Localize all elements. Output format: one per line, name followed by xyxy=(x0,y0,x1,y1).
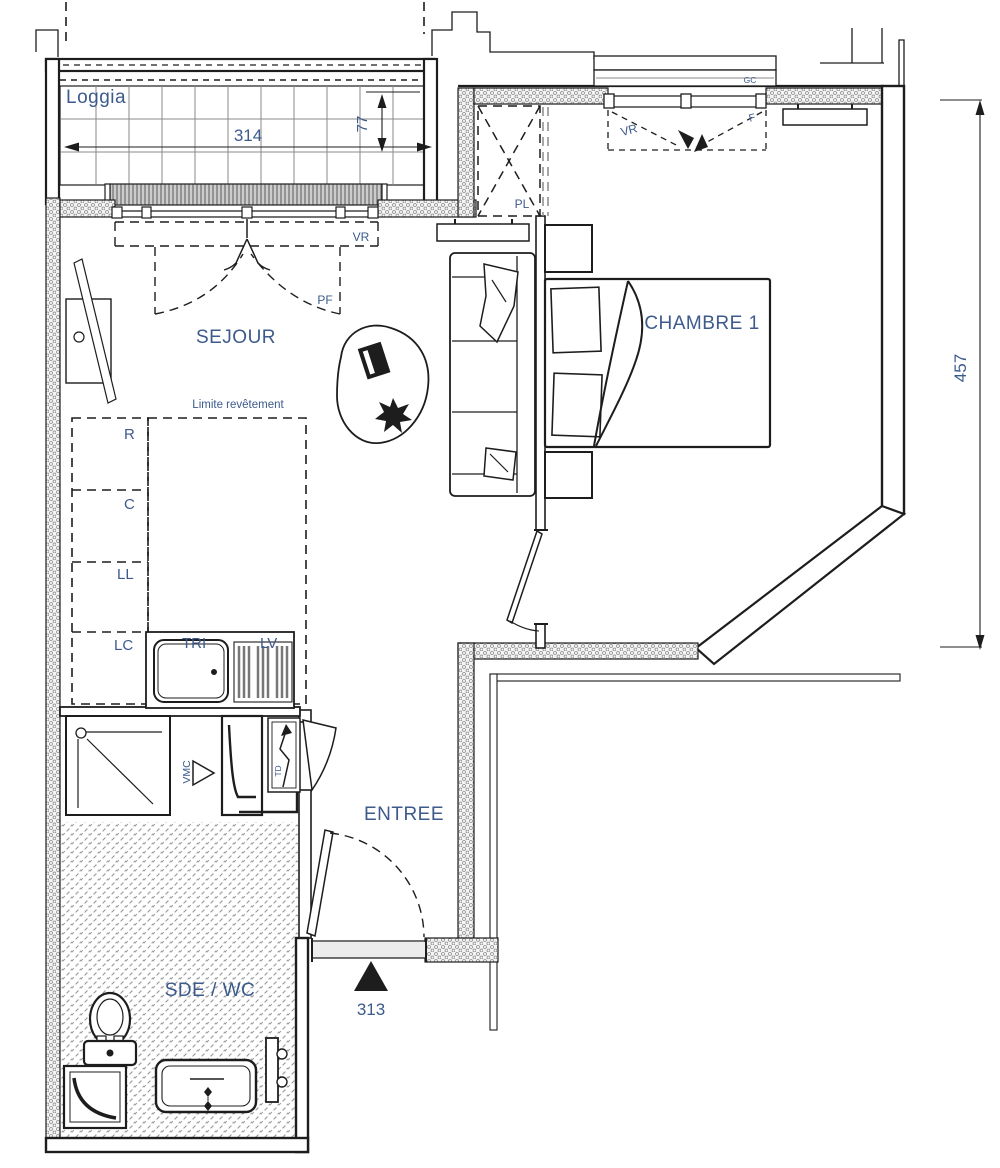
bathroom-door-swing xyxy=(303,720,336,790)
floor-plan-page: Loggia 314 77 457 SEJOUR CHAMBRE 1 ENTRE… xyxy=(0,0,1000,1168)
kitchen-block xyxy=(72,418,306,708)
annotation-f: F xyxy=(748,111,757,124)
annotation-pf: PF xyxy=(317,293,332,307)
living-window xyxy=(112,207,378,314)
kitchen-label-tri: TRI xyxy=(182,635,206,652)
wall-board xyxy=(66,259,116,403)
loggia-shutter-band xyxy=(110,184,382,205)
dim-right-height: 457 xyxy=(951,354,970,382)
kitchen-label-lc: LC xyxy=(114,637,133,654)
bedroom-door xyxy=(507,531,542,631)
annotation-vmc: VMC xyxy=(181,760,193,784)
annotation-gc: GC xyxy=(744,75,757,85)
room-label-loggia: Loggia xyxy=(66,87,126,108)
bed xyxy=(545,225,770,498)
shower xyxy=(66,716,170,815)
chamfer-wall xyxy=(696,506,904,664)
annotation-td: TD xyxy=(273,765,283,776)
room-label-sejour: SEJOUR xyxy=(196,327,276,348)
bedroom-radiator xyxy=(783,109,867,125)
dim-loggia-width: 314 xyxy=(234,126,262,145)
dim-loggia-depth: 77 xyxy=(354,116,371,133)
living-radiator xyxy=(437,219,529,241)
room-label-chambre-1: CHAMBRE 1 xyxy=(644,313,759,334)
electrical-panel xyxy=(268,718,300,792)
closet-pl xyxy=(478,106,548,216)
annotation-pl: PL xyxy=(515,197,530,211)
vmc-symbol xyxy=(193,761,214,785)
floor-plan: Loggia 314 77 457 SEJOUR CHAMBRE 1 ENTRE… xyxy=(0,0,1000,1168)
nightstand-bottom xyxy=(545,452,592,498)
vanity xyxy=(156,1060,256,1112)
entrance-door xyxy=(307,830,426,991)
sofa xyxy=(450,253,535,496)
kitchen-label-c: C xyxy=(124,496,135,513)
entry-marker-triangle xyxy=(354,961,388,991)
room-label-entree: ENTREE xyxy=(364,804,444,825)
annotation-vr-living: VR xyxy=(353,230,370,244)
corner-unit xyxy=(64,1066,126,1128)
nightstand-top xyxy=(545,225,592,272)
kitchen-label-lv: LV xyxy=(260,635,277,652)
entry-door-marker: 313 xyxy=(357,1000,385,1019)
kitchen-label-ll: LL xyxy=(117,566,134,583)
coffee-table xyxy=(337,326,428,444)
kitchen-label-r: R xyxy=(124,426,135,443)
annotation-limite-revetement: Limite revêtement xyxy=(192,399,284,411)
room-label-sde-wc: SDE / WC xyxy=(165,980,256,1001)
